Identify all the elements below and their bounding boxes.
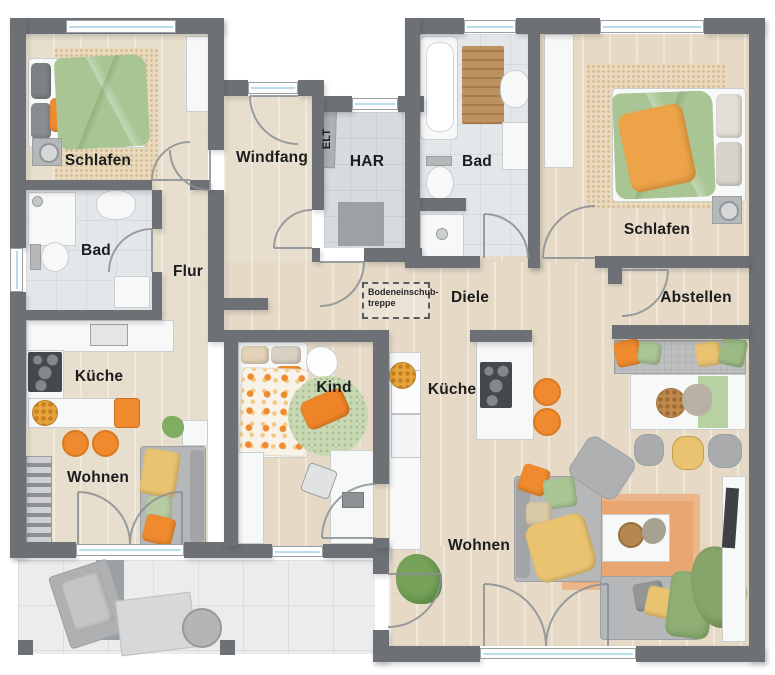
toilet-tank bbox=[426, 156, 452, 166]
wall bbox=[373, 546, 389, 574]
plant bbox=[162, 416, 184, 438]
wall bbox=[516, 18, 600, 34]
pillow bbox=[271, 346, 301, 364]
wall bbox=[152, 272, 162, 312]
wall bbox=[595, 256, 749, 268]
wall bbox=[749, 18, 765, 662]
sink bbox=[500, 70, 530, 108]
pillow bbox=[716, 142, 742, 186]
dining-chair bbox=[708, 434, 742, 468]
window bbox=[10, 248, 23, 292]
room-label-kueche-left: Küche bbox=[75, 368, 123, 386]
kitchen-sink bbox=[90, 324, 128, 346]
room-label-kind: Kind bbox=[316, 379, 351, 397]
fruit-bowl bbox=[389, 362, 416, 389]
stove-hob bbox=[28, 352, 62, 392]
wall bbox=[612, 325, 749, 339]
room-label-wohnen-left: Wohnen bbox=[67, 469, 129, 487]
chair-orange bbox=[114, 398, 140, 428]
sofa-back bbox=[190, 450, 204, 542]
side-table bbox=[182, 420, 208, 446]
wall bbox=[298, 80, 324, 96]
stool-orange bbox=[62, 430, 89, 457]
wardrobe bbox=[544, 34, 574, 168]
wall bbox=[373, 646, 480, 662]
stairs-label-line2: treppe bbox=[368, 298, 428, 309]
sink bbox=[96, 190, 136, 220]
room-label-bad-right: Bad bbox=[462, 153, 492, 171]
wall bbox=[26, 180, 152, 190]
stool-orange bbox=[533, 378, 561, 406]
entry-door-band bbox=[248, 82, 298, 94]
wall bbox=[224, 544, 272, 558]
wall bbox=[405, 18, 420, 262]
room-label-windfang: Windfang bbox=[236, 149, 308, 167]
pillow bbox=[241, 346, 269, 364]
window bbox=[600, 20, 704, 33]
room-label-schlafen-right: Schlafen bbox=[624, 221, 690, 239]
bath-mat bbox=[462, 46, 504, 124]
bath-cabinet bbox=[114, 276, 150, 308]
flower-stool bbox=[306, 346, 338, 378]
fridge bbox=[391, 414, 421, 458]
stool-orange bbox=[92, 430, 119, 457]
wall bbox=[373, 342, 389, 484]
wall bbox=[224, 342, 238, 546]
wall bbox=[528, 34, 540, 268]
wall bbox=[405, 256, 480, 268]
wall bbox=[373, 538, 389, 548]
room-label-flur: Flur bbox=[173, 263, 203, 281]
pillow bbox=[31, 103, 51, 139]
bookshelf bbox=[26, 456, 52, 548]
attic-stairs-outline: Bodeneinschub- treppe bbox=[362, 282, 430, 319]
shower-drain bbox=[436, 228, 448, 240]
dining-chair bbox=[634, 434, 664, 466]
wall bbox=[208, 18, 224, 150]
bath-cabinet bbox=[502, 122, 530, 170]
french-door-band bbox=[76, 544, 184, 556]
room-label-har: HAR bbox=[350, 153, 384, 171]
pillow-green bbox=[637, 341, 663, 366]
wall bbox=[152, 190, 162, 229]
wall bbox=[224, 298, 268, 310]
toilet bbox=[426, 166, 454, 200]
wall bbox=[10, 292, 26, 558]
window bbox=[464, 20, 516, 33]
stairs-label-line1: Bodeneinschub- bbox=[368, 287, 428, 298]
pillow bbox=[716, 94, 742, 138]
dining-chair-yellow bbox=[672, 436, 704, 470]
terrace-post bbox=[220, 640, 235, 655]
kids-wardrobe bbox=[238, 452, 264, 544]
wall bbox=[608, 268, 622, 284]
lamp bbox=[719, 201, 739, 221]
wall bbox=[190, 180, 210, 190]
lamp bbox=[39, 143, 59, 163]
wall bbox=[26, 310, 162, 320]
room-label-kueche-right: Küche bbox=[428, 381, 476, 399]
outdoor-table bbox=[182, 608, 222, 648]
wall bbox=[224, 80, 248, 96]
window bbox=[66, 20, 176, 33]
pillow bbox=[31, 63, 51, 99]
wall bbox=[208, 330, 389, 342]
wall bbox=[208, 190, 224, 330]
throw-yellow bbox=[139, 447, 182, 498]
decor-bowl bbox=[618, 522, 644, 548]
centerpiece-plant bbox=[682, 384, 712, 416]
stool-orange bbox=[533, 408, 561, 436]
room-label-elt: ELT bbox=[321, 129, 333, 150]
wall bbox=[470, 330, 532, 342]
stove-hob bbox=[480, 362, 512, 408]
room-label-wohnen-right: Wohnen bbox=[448, 537, 510, 555]
floor-plan: Bodeneinschub- treppe bbox=[0, 0, 775, 675]
bathtub-inner bbox=[426, 42, 454, 132]
wall bbox=[184, 542, 224, 558]
room-label-schlafen-left: Schlafen bbox=[65, 152, 131, 170]
wall bbox=[312, 248, 320, 262]
shower-drain bbox=[32, 196, 43, 207]
window bbox=[272, 546, 323, 557]
wall bbox=[10, 542, 76, 558]
laptop bbox=[342, 492, 364, 508]
room-label-abstellen: Abstellen bbox=[660, 289, 732, 307]
duvet bbox=[54, 54, 151, 151]
wall bbox=[10, 18, 26, 248]
fruit-bowl bbox=[32, 400, 58, 426]
room-label-diele: Diele bbox=[451, 289, 489, 307]
toilet bbox=[41, 242, 69, 272]
toilet-tank bbox=[30, 244, 41, 270]
window bbox=[352, 98, 398, 110]
wall-stub bbox=[420, 198, 466, 211]
room-label-bad-left: Bad bbox=[81, 242, 111, 260]
wall bbox=[312, 96, 324, 210]
patio-door-band bbox=[480, 648, 636, 659]
terrace-post bbox=[18, 640, 33, 655]
heating-unit bbox=[338, 202, 384, 246]
wall bbox=[636, 646, 765, 662]
